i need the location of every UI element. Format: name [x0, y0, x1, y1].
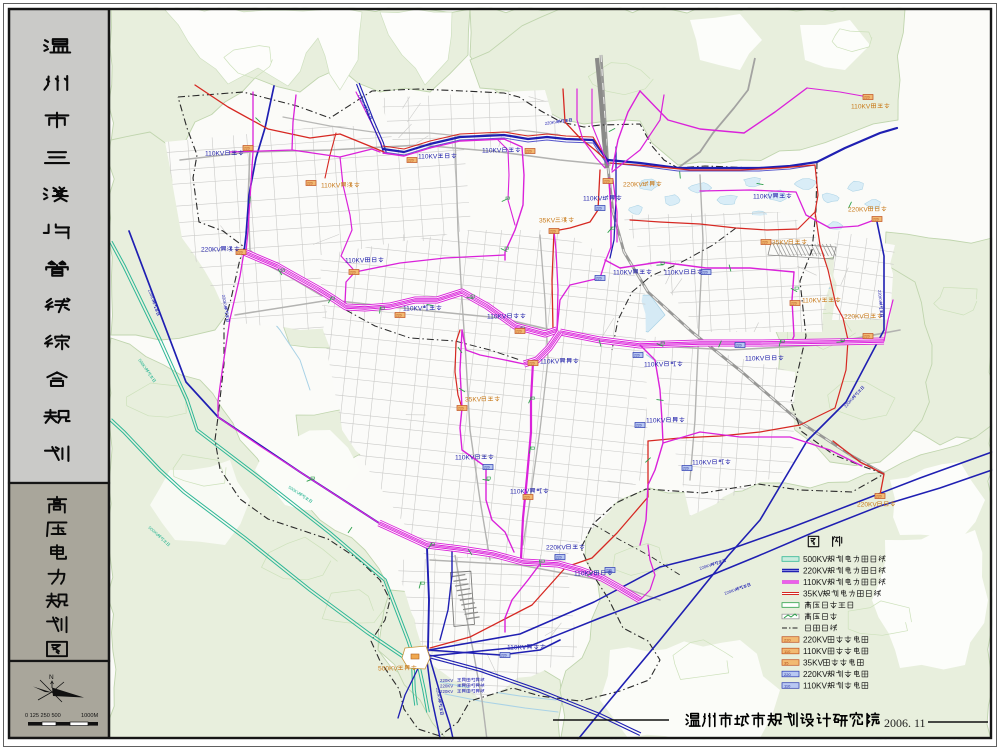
svg-text:220KV: 220KV	[848, 206, 868, 213]
svg-text:220: 220	[237, 250, 243, 254]
svg-text:110KV: 110KV	[418, 153, 438, 160]
svg-text:110KV: 110KV	[482, 147, 502, 154]
svg-text:220KV: 220KV	[201, 246, 221, 253]
svg-text:110KV: 110KV	[540, 358, 560, 365]
svg-text:35KV: 35KV	[803, 590, 824, 599]
svg-text:110KV: 110KV	[851, 103, 871, 110]
svg-text:110KV: 110KV	[507, 644, 527, 651]
svg-text:110KV: 110KV	[646, 417, 666, 424]
svg-text:220: 220	[636, 423, 642, 427]
svg-text:220: 220	[244, 146, 250, 150]
svg-text:220: 220	[864, 334, 870, 338]
svg-text:35KV: 35KV	[803, 659, 824, 668]
svg-text:220: 220	[784, 672, 791, 677]
svg-text:0 125 250 500: 0 125 250 500	[25, 713, 61, 719]
svg-text:220: 220	[791, 301, 797, 305]
svg-text:110KV: 110KV	[803, 647, 828, 656]
svg-text:220KV: 220KV	[857, 501, 877, 508]
svg-text:220: 220	[596, 206, 602, 210]
svg-text:220: 220	[762, 240, 768, 244]
svg-text:500KV: 500KV	[803, 555, 828, 564]
svg-text:110KV: 110KV	[803, 682, 828, 691]
svg-text:220KV: 220KV	[440, 684, 453, 689]
svg-text:110KV: 110KV	[321, 182, 341, 189]
svg-text:220: 220	[396, 313, 402, 317]
svg-text:220: 220	[556, 555, 562, 559]
svg-text:220: 220	[876, 494, 882, 498]
svg-text:110KV: 110KV	[644, 361, 664, 368]
svg-text:110KV: 110KV	[745, 355, 765, 362]
svg-text:110KV: 110KV	[403, 305, 423, 312]
svg-text:220: 220	[634, 353, 640, 357]
svg-text:220KV: 220KV	[803, 636, 828, 645]
svg-text:220KV: 220KV	[844, 313, 864, 320]
svg-text:220: 220	[458, 406, 464, 410]
svg-text:1000M: 1000M	[81, 713, 98, 719]
svg-text:220: 220	[550, 229, 556, 233]
svg-text:220: 220	[702, 270, 708, 274]
svg-text:220: 220	[408, 158, 414, 162]
svg-text:110: 110	[784, 684, 791, 689]
svg-text:220: 220	[529, 361, 535, 365]
svg-text:220: 220	[736, 343, 742, 347]
svg-text:220KV: 220KV	[440, 689, 453, 694]
svg-text:110KV: 110KV	[753, 193, 773, 200]
svg-text:220: 220	[683, 466, 689, 470]
svg-text:35KV: 35KV	[539, 217, 556, 224]
svg-text:500KV: 500KV	[378, 665, 398, 672]
svg-text:110KV: 110KV	[345, 257, 365, 264]
svg-text:220KV: 220KV	[546, 544, 566, 551]
svg-text:110KV: 110KV	[510, 488, 530, 495]
svg-text:220: 220	[501, 653, 507, 657]
svg-text:220KV: 220KV	[803, 670, 828, 679]
svg-text:110: 110	[784, 649, 791, 654]
svg-text:110KV: 110KV	[205, 150, 225, 157]
svg-text:110KV: 110KV	[802, 297, 822, 304]
svg-text:220KV: 220KV	[440, 678, 453, 683]
svg-text:220: 220	[604, 179, 610, 183]
svg-text:220: 220	[307, 181, 313, 185]
svg-text:220: 220	[484, 465, 490, 469]
svg-text:110KV: 110KV	[455, 454, 475, 461]
svg-text:2006. 11: 2006. 11	[884, 716, 926, 730]
svg-text:220KV: 220KV	[623, 181, 643, 188]
svg-text:110KV: 110KV	[692, 459, 712, 466]
svg-text:N: N	[49, 674, 54, 681]
svg-text:110KV: 110KV	[613, 269, 633, 276]
svg-text:220: 220	[784, 638, 791, 643]
svg-text:35KV: 35KV	[465, 396, 482, 403]
svg-text:220: 220	[524, 495, 530, 499]
svg-text:220: 220	[873, 217, 879, 221]
svg-text:35KV: 35KV	[772, 239, 789, 246]
svg-text:110KV: 110KV	[583, 195, 603, 202]
svg-text:220KV: 220KV	[803, 567, 828, 576]
svg-text:220: 220	[596, 276, 602, 280]
svg-text:220: 220	[864, 95, 870, 99]
svg-text:110KV: 110KV	[664, 269, 684, 276]
svg-text:220: 220	[350, 270, 356, 274]
svg-text:220: 220	[516, 329, 522, 333]
svg-text:35: 35	[784, 661, 789, 666]
svg-text:220: 220	[526, 149, 532, 153]
svg-text:110KV: 110KV	[574, 570, 594, 577]
svg-text:110KV: 110KV	[487, 313, 507, 320]
svg-text:110KV: 110KV	[803, 578, 828, 587]
